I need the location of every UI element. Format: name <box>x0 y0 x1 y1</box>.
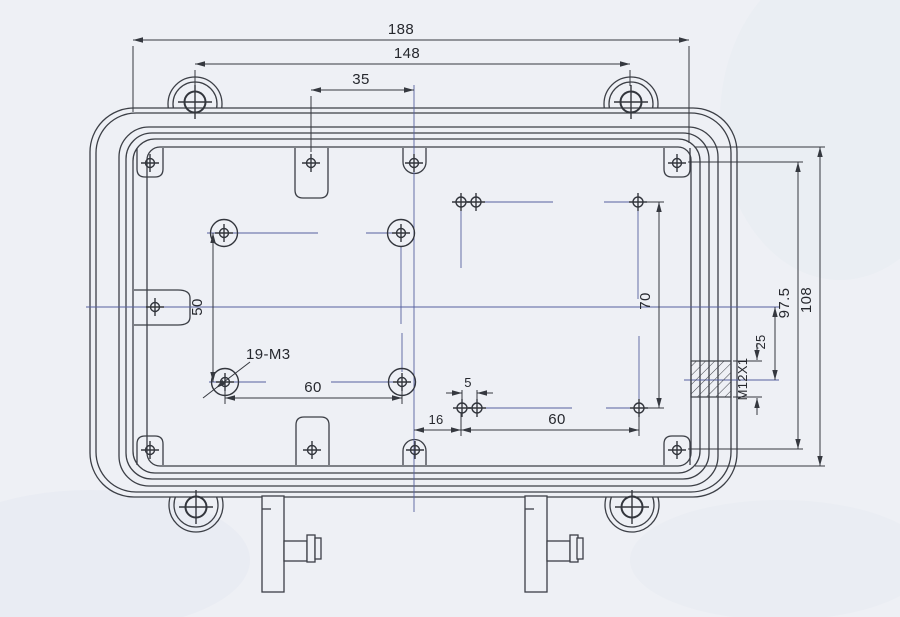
dim-tab-offset: 35 <box>352 71 370 88</box>
nipple-tip <box>315 538 321 559</box>
dim-corner-screw-span: 97.5 <box>776 288 793 319</box>
dim-left-pattern-height: 50 <box>189 298 206 316</box>
dim-right-pattern-width: 60 <box>548 411 566 428</box>
gland-thread-label: M12X1 <box>735 358 750 401</box>
nipple-neck <box>284 541 307 561</box>
dim-inner-height: 108 <box>798 287 815 313</box>
nipple-neck <box>547 541 570 561</box>
dim-right-pattern-height: 70 <box>637 292 654 310</box>
thread-note-label: 19-M3 <box>246 346 291 363</box>
nipple-ring <box>307 535 315 562</box>
dim-edge-offset: 16 <box>428 412 443 427</box>
nipple-tip <box>577 538 583 559</box>
gland-hatch-section <box>691 361 731 397</box>
dim-left-pattern-width: 60 <box>304 379 322 396</box>
dim-gland-offset: 25 <box>753 334 768 349</box>
dim-mount-spacing: 148 <box>394 45 420 62</box>
dim-overall-width: 188 <box>388 21 414 38</box>
dim-pair-gap: 5 <box>464 375 472 390</box>
enclosure-technical-drawing: 188 148 35 50 60 19-M3 70 5 <box>0 0 900 617</box>
scanned-technical-drawing-page: 188 148 35 50 60 19-M3 70 5 <box>0 0 900 617</box>
